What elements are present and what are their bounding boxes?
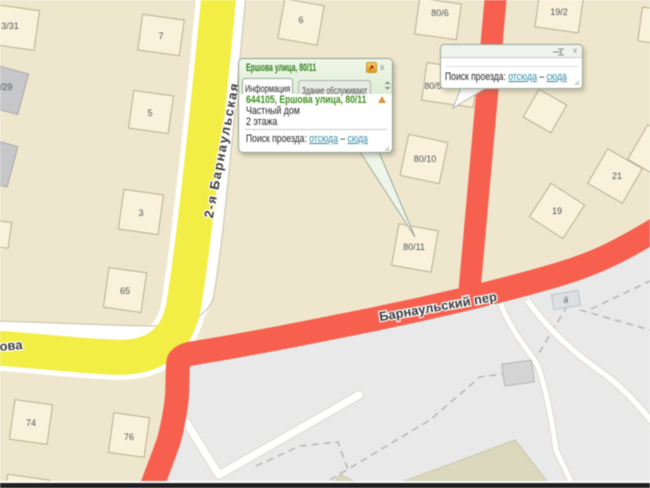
svg-text:80/10: 80/10 xyxy=(414,154,437,164)
svg-text:5: 5 xyxy=(147,108,152,118)
svg-text:3: 3 xyxy=(138,208,143,218)
svg-text:19: 19 xyxy=(552,206,562,216)
svg-text:74: 74 xyxy=(26,418,36,428)
svg-text:3/31: 3/31 xyxy=(1,21,19,31)
svg-text:80/6: 80/6 xyxy=(431,8,449,18)
svg-text:65: 65 xyxy=(120,286,130,296)
svg-text:80/11: 80/11 xyxy=(403,242,425,252)
svg-text:21: 21 xyxy=(612,171,622,181)
svg-text:6: 6 xyxy=(298,15,303,25)
svg-text:/29: /29 xyxy=(0,82,12,92)
svg-text:19/2: 19/2 xyxy=(550,7,568,17)
svg-text:76: 76 xyxy=(124,432,134,442)
svg-text:й: й xyxy=(564,296,568,305)
svg-text:ова: ова xyxy=(0,337,24,354)
svg-text:7: 7 xyxy=(158,31,163,41)
